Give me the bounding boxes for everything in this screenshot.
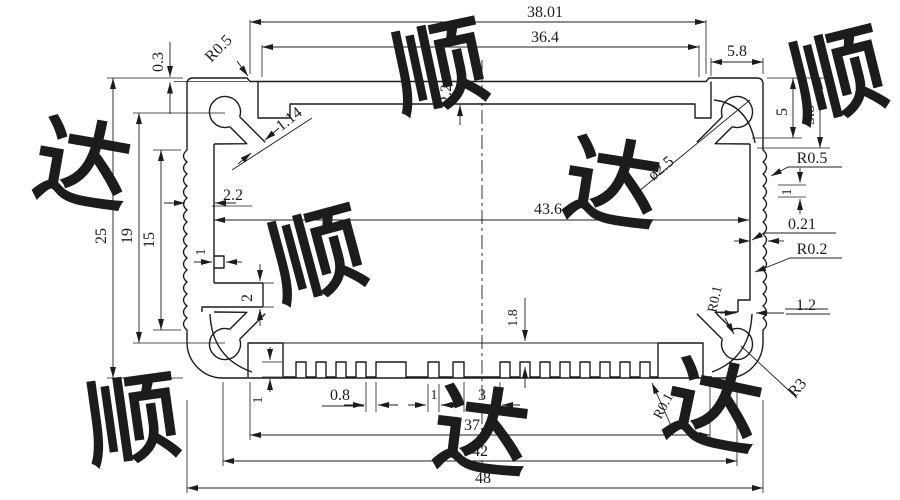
dim-15: 15 [141,232,158,248]
watermark-char: 达 [656,347,771,470]
watermark-char: 顺 [78,363,187,481]
dim-2-rail: 2 [239,294,256,302]
dim-2-2-top: 2.2 [438,84,455,104]
dim-0-21: 0.21 [788,216,816,233]
dim-5-right: 5 [774,108,791,116]
dim-25: 25 [93,228,110,244]
dim-2-2-left: 2.2 [223,187,243,204]
screw-boss-top-left [209,96,265,144]
dim-42: 42 [472,443,488,460]
screw-boss-bottom-left [209,312,265,360]
dim-r3: R3 [785,375,810,400]
right-inner-wall [712,144,752,372]
dim-1-14: 1.14 [273,104,306,135]
dim-3: 3 [478,387,486,404]
dim-19: 19 [119,228,136,244]
watermark-char: 达 [26,106,138,227]
drawing-canvas: 顺 达 顺 达 顺 达 顺 达 [0,0,900,500]
bottom-teeth [248,343,712,377]
dim-5-8-right: 5.8 [801,105,818,125]
dim-5-8-top: 5.8 [727,43,747,60]
dim-1-bottom: 1 [431,388,438,403]
dim-1-left: 1 [194,249,209,256]
dim-r0-2: R0.2 [797,241,828,258]
dim-r0-1-right: R0.1 [705,285,725,314]
dim-37-4: 37.4 [464,417,492,434]
technical-drawing: 顺 达 顺 达 顺 达 顺 达 [0,0,900,500]
dim-r0-5-top-left: R0.5 [202,32,236,66]
dim-1-tooth: 1 [251,397,266,404]
watermark-char: 顺 [258,193,377,320]
dim-r0-5-right: R0.5 [797,150,828,167]
dim-43-6: 43.6 [534,201,562,218]
dim-38-01: 38.01 [527,4,563,21]
dim-1-right: 1 [780,189,795,196]
dim-0-8: 0.8 [330,387,350,404]
watermark-char: 达 [557,126,667,246]
dim-1-8: 1.8 [506,309,521,327]
watermark-char: 顺 [382,7,497,130]
dim-0-3: 0.3 [150,52,167,72]
dim-36-4: 36.4 [531,29,559,46]
dim-1-2: 1.2 [796,297,816,314]
watermark-char: 顺 [779,15,897,141]
dim-48: 48 [475,470,491,487]
